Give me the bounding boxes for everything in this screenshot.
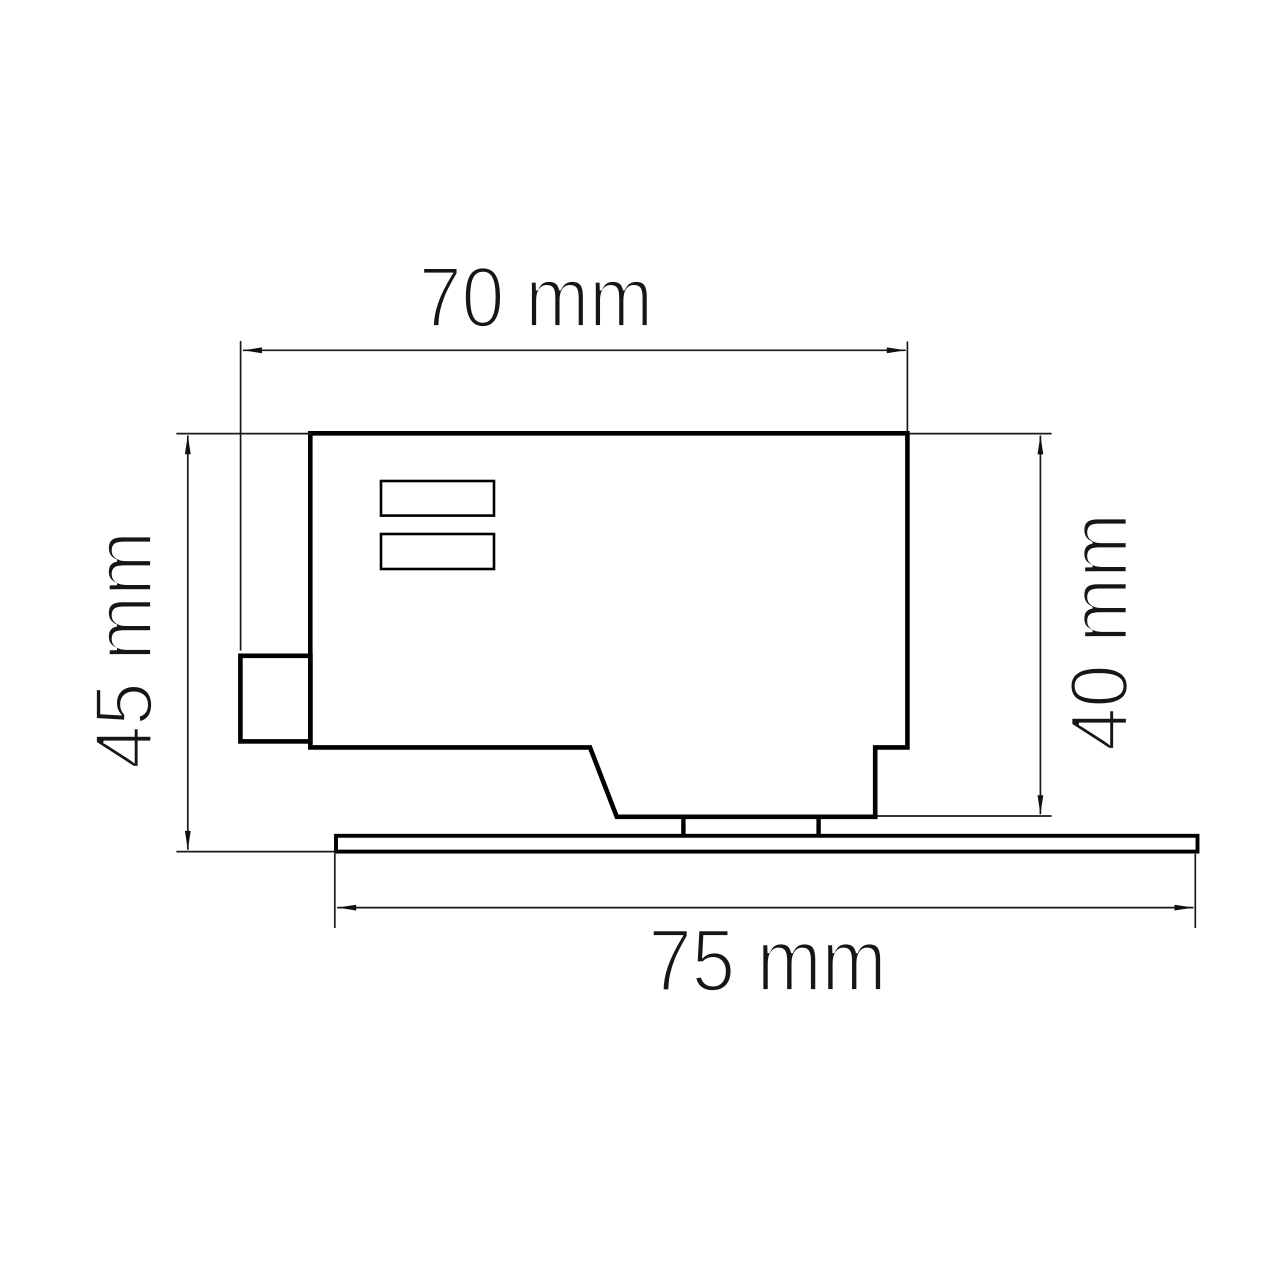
svg-text:45 mm: 45 mm — [79, 531, 170, 769]
svg-text:40 mm: 40 mm — [1054, 513, 1145, 751]
svg-text:70 mm: 70 mm — [419, 251, 653, 346]
svg-text:75 mm: 75 mm — [649, 911, 887, 1010]
